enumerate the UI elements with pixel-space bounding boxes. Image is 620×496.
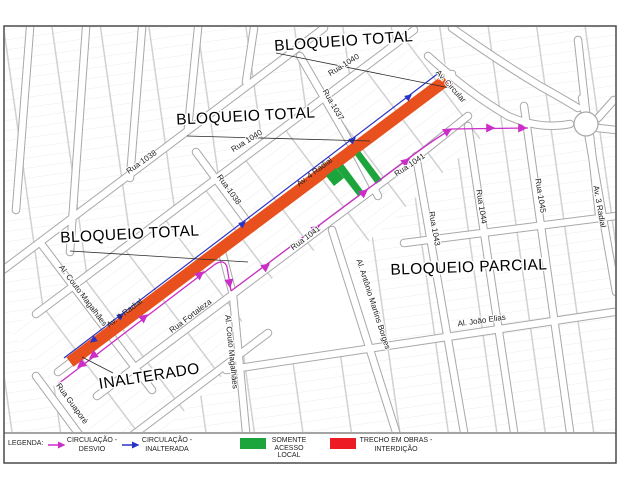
traffic-plan-map: Rua 1040 Rua 1040 Rua 1037 Rua 1038 Rua …: [0, 0, 620, 496]
legend-line: INTERDIÇÃO: [356, 446, 436, 455]
legend-line: CIRCULAÇÃO -: [64, 437, 120, 446]
legend-line: TRECHO EM OBRAS -: [356, 437, 436, 446]
legend-line: ACESSO: [266, 445, 312, 453]
legend: LEGENDA: CIRCULAÇÃO - DESVIO CIRCULAÇÃO …: [4, 433, 616, 463]
legend-item-desvio: CIRCULAÇÃO - DESVIO: [64, 437, 120, 455]
legend-line: SOMENTE: [266, 437, 312, 445]
legend-line: LOCAL: [266, 452, 312, 460]
legend-item-obras: TRECHO EM OBRAS - INTERDIÇÃO: [356, 437, 436, 455]
legend-item-inalterada: CIRCULAÇÃO - INALTERADA: [138, 437, 196, 455]
legend-item-acesso-local: SOMENTE ACESSO LOCAL: [266, 437, 312, 460]
map-canvas: Rua 1040 Rua 1040 Rua 1037 Rua 1038 Rua …: [0, 0, 620, 496]
legend-line: DESVIO: [64, 446, 120, 455]
legend-line: INALTERADA: [138, 446, 196, 455]
legend-title: LEGENDA:: [8, 440, 43, 447]
street-network: Rua 1040 Rua 1040 Rua 1037 Rua 1038 Rua …: [3, 27, 616, 470]
roundabout: [574, 112, 598, 136]
legend-line: CIRCULAÇÃO -: [138, 437, 196, 446]
